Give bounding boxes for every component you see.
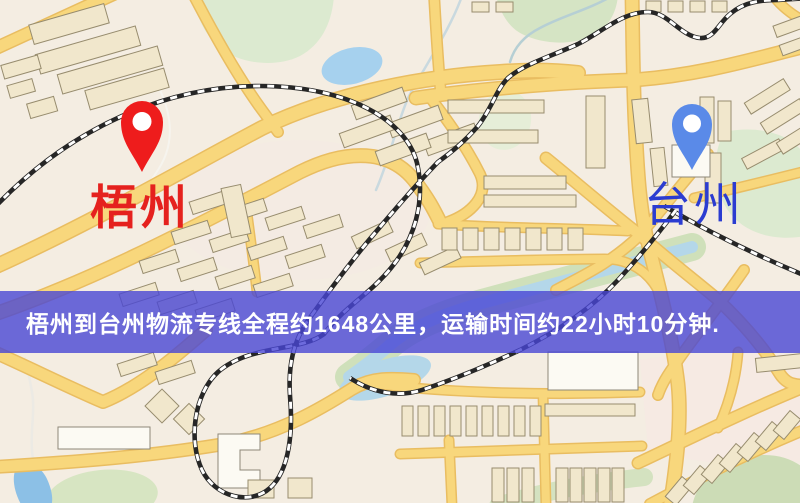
route-info-banner: 梧州到台州物流专线全程约1648公里，运输时间约22小时10分钟. <box>0 291 800 353</box>
logistics-route-map: 梧州 台州 梧州到台州物流专线全程约1648公里，运输时间约22小时10分钟. <box>0 0 800 503</box>
route-info-text: 梧州到台州物流专线全程约1648公里，运输时间约22小时10分钟. <box>26 305 720 339</box>
destination-label: 台州 <box>644 178 744 231</box>
origin-label: 梧州 <box>90 181 190 234</box>
destination-pin-hole <box>683 115 701 133</box>
origin-pin-hole <box>133 112 152 131</box>
map-canvas: 梧州 台州 <box>0 0 800 503</box>
